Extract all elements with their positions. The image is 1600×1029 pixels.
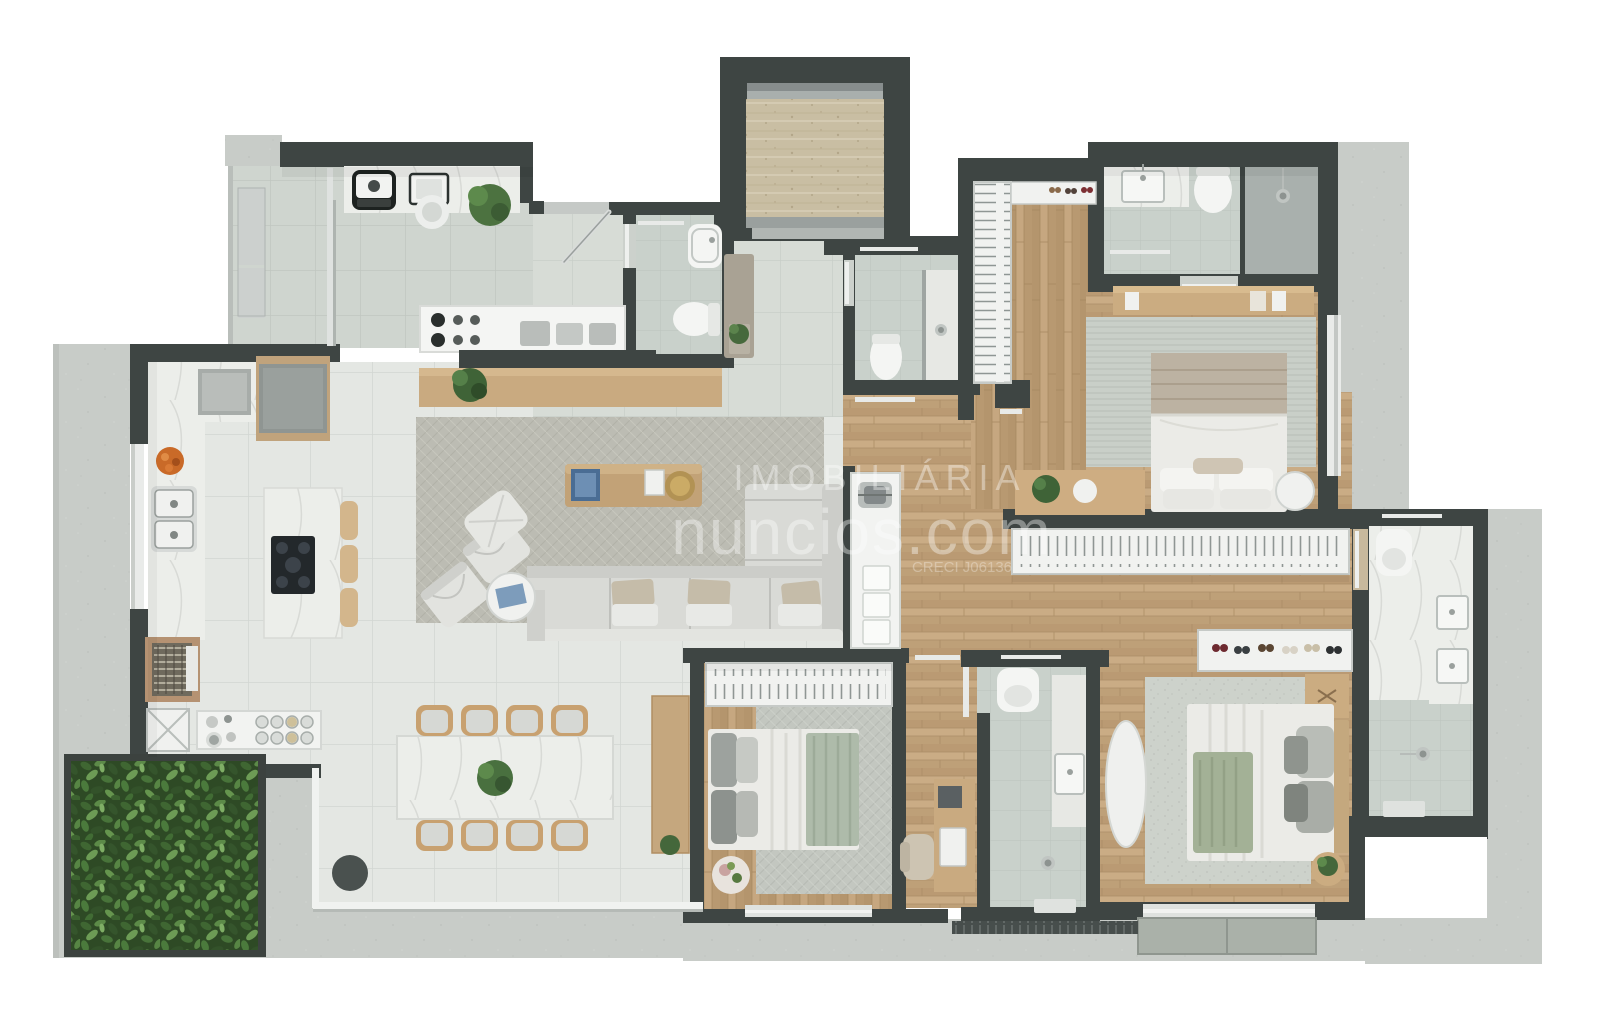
svg-text:IMOBILIÁRIA: IMOBILIÁRIA bbox=[733, 457, 1026, 498]
svg-text:nuncios.com: nuncios.com bbox=[671, 496, 1052, 568]
svg-text:CRECI J06136: CRECI J06136 bbox=[912, 559, 1012, 576]
